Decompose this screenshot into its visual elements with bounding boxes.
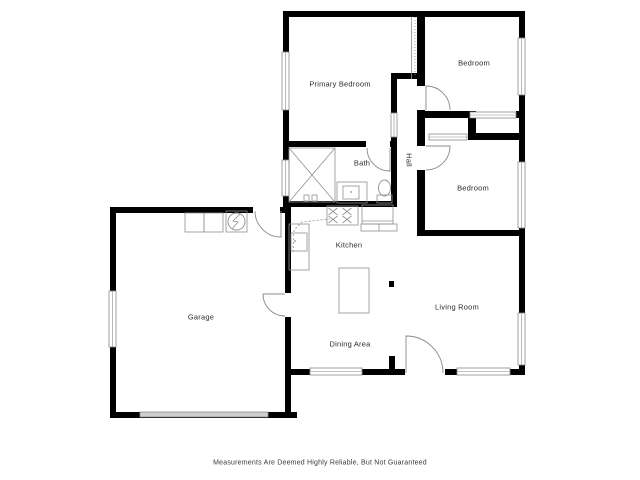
- room-label-kitchen: Kitchen: [336, 241, 362, 250]
- garage-entry-door: [255, 211, 281, 237]
- garage-door: [140, 412, 268, 417]
- room-label-bedroom-middle: Bedroom: [457, 184, 489, 193]
- toilet-bowl: [379, 180, 391, 196]
- floorplan-page: Primary Bedroom Bedroom Bedroom Bath Hal…: [0, 0, 640, 480]
- wall-closet-bottom: [468, 133, 525, 140]
- wall-hall-top: [391, 73, 421, 79]
- room-label-dining-area: Dining Area: [330, 340, 371, 349]
- wall-top: [283, 11, 525, 17]
- stove: [327, 206, 358, 225]
- room-label-bedroom-top: Bedroom: [458, 59, 490, 68]
- opening-garage-entry: [253, 207, 280, 213]
- bath-vanity: [337, 182, 367, 203]
- wall-closet-top: [417, 111, 470, 118]
- vanity-faucet: [350, 191, 352, 193]
- wall-bath-hall: [391, 73, 397, 207]
- shower-valve-left: [304, 195, 309, 201]
- counter-left: [289, 224, 309, 270]
- wall-bedrooms-left: [417, 11, 425, 236]
- room-label-bath: Bath: [354, 159, 370, 168]
- bath-door: [367, 148, 390, 171]
- room-label-garage: Garage: [188, 313, 214, 322]
- room-label-hall: Hall: [405, 153, 414, 167]
- garage-side-door: [263, 294, 285, 316]
- bedroom-top-door: [426, 86, 450, 110]
- opening-bath-door: [366, 141, 390, 147]
- kitchen-sink-faucet: [294, 240, 296, 242]
- water-heater-bolt: [232, 214, 240, 229]
- opening-bedroom-middle-door: [416, 146, 426, 170]
- opening-front-door: [405, 369, 445, 375]
- room-label-primary-bedroom: Primary Bedroom: [309, 80, 370, 89]
- shower-valve-right: [312, 195, 317, 201]
- structural-post: [389, 281, 394, 287]
- room-label-living-room: Living Room: [435, 303, 479, 312]
- kitchen-island: [339, 268, 369, 313]
- dryer: [204, 213, 223, 232]
- wall-closet-top-right: [516, 111, 525, 118]
- front-door: [406, 336, 443, 373]
- disclaimer-text: Measurements Are Deemed Highly Reliable,…: [213, 460, 427, 467]
- opening-garage-side: [285, 293, 291, 317]
- washer: [185, 213, 204, 232]
- floorplan-canvas: [0, 0, 640, 480]
- opening-bedroom-top-door: [416, 86, 426, 110]
- wall-bedroom2-bottom: [417, 230, 525, 236]
- bedroom-middle-door: [426, 146, 450, 170]
- wall-entry-stub: [389, 356, 395, 375]
